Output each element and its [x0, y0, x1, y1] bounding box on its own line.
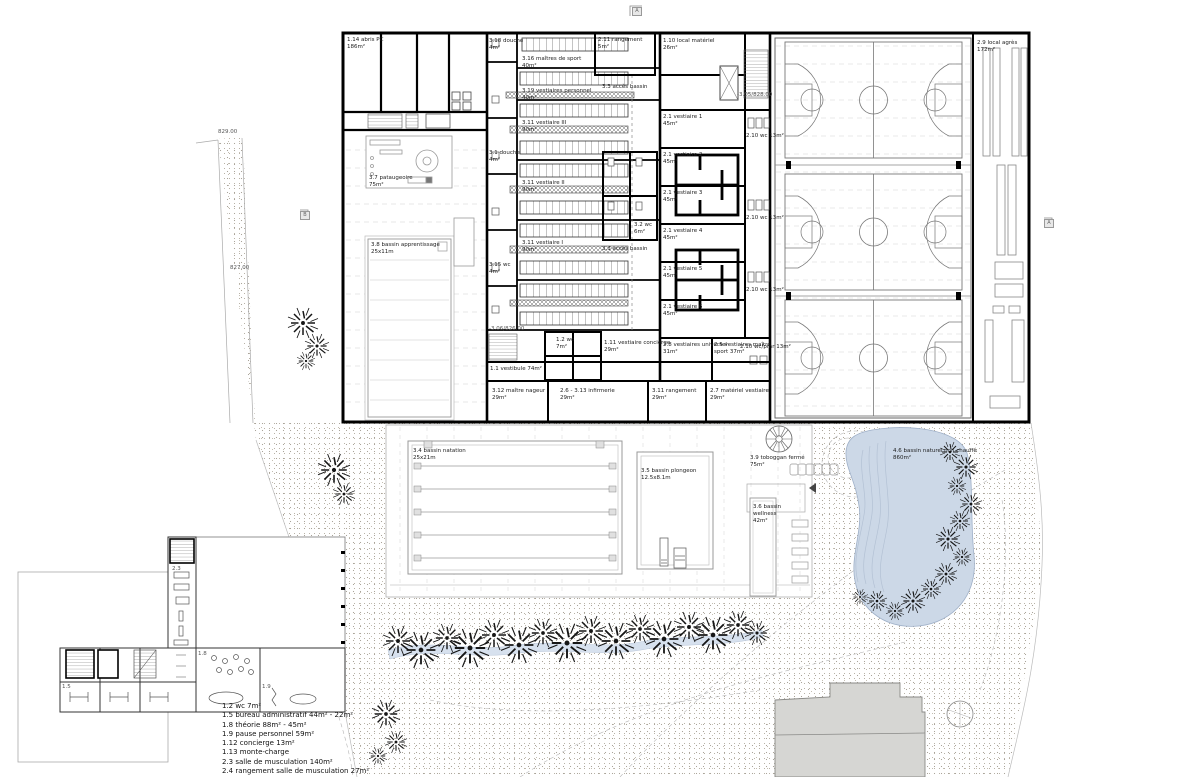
- room-label: 2.1 vestiaire 2 45m²: [663, 152, 702, 166]
- room-label: 3.16 maîtres de sport 40m²: [522, 56, 581, 70]
- room-legend: 1.2 wc 7m² 1.5 bureau administratif 44m²…: [222, 702, 369, 776]
- room-label: 1.11 vestiaire concierge 29m²: [604, 340, 670, 354]
- room-label: 2.10 wc 13m²: [746, 215, 784, 222]
- room-label: 3.3 accès bassin: [602, 84, 648, 91]
- level-label: -3.06/826.00: [489, 326, 524, 333]
- site-plan: 1.14 abris PC 186m² 2.9 local agrès 172m…: [0, 0, 1200, 777]
- room-label: 2.1 vestiaire 6 45m²: [663, 304, 702, 318]
- room-label: 1.1 vestibule 74m²: [490, 366, 542, 373]
- legend-line: 1.8 théorie 88m² - 45m²: [222, 721, 369, 730]
- pool-label: 3.6 bassin wellness 42m²: [753, 504, 781, 525]
- level-label: -3.05/828.00: [737, 92, 772, 99]
- room-number: 1.9: [262, 684, 271, 691]
- legend-line: 1.9 pause personnel 59m²: [222, 730, 369, 739]
- legend-line: 2.4 rangement salle de musculation 27m²: [222, 767, 369, 776]
- room-label: 2.1 vestiaire 3 45m²: [663, 190, 702, 204]
- legend-line: 1.5 bureau administratif 44m² - 22m²: [222, 711, 369, 720]
- room-label: 2.10 wc 13m²: [746, 133, 784, 140]
- room-number: 1.8: [198, 651, 207, 658]
- room-label: 1.10 local matériel 26m²: [663, 38, 715, 52]
- room-label: 3.11 vestiaire III 90m²: [522, 120, 566, 134]
- room-number: 2.3: [172, 566, 181, 573]
- room-label: 3.11 vestiaire II 90m²: [522, 180, 565, 194]
- legend-line: 1.13 monte-charge: [222, 748, 369, 757]
- room-label: 1.2 wc 7m²: [556, 337, 574, 351]
- room-label: 3.8 bassin apprentissage 25x11m: [371, 242, 440, 256]
- pool-label: 3.4 bassin natation 25x21m: [413, 448, 466, 462]
- room-label: 2.1 vestiaire 5 45m²: [663, 266, 702, 280]
- room-label: 2.1 vestiaire 4 45m²: [663, 228, 702, 242]
- existing-building: [775, 683, 973, 777]
- room-label: 3.3 accès bassin: [602, 246, 648, 253]
- legend-line: 1.2 wc 7m²: [222, 702, 369, 711]
- pond-label: 4.6 bassin naturel non chauffé 860m²: [893, 448, 977, 462]
- room-label: 2.5 vestiaires maître sport 37m²: [714, 342, 771, 356]
- room-label: 3.1 douche 4m²: [489, 150, 520, 164]
- stair-south: [489, 334, 517, 360]
- room-label: 3.19 vestiaires personnel 40m²: [522, 88, 591, 102]
- section-marker-right: A: [1044, 219, 1054, 228]
- section-marker-top: A: [632, 7, 642, 16]
- room-label: 3.11 vestiaire I 90m²: [522, 240, 563, 254]
- legend-line: 1.12 concierge 13m²: [222, 739, 369, 748]
- room-label: 2.1 vestiaire 1 45m²: [663, 114, 702, 128]
- room-label: 2.11 rangement 5m²: [598, 37, 642, 51]
- room-label: 2.10 wc 13m²: [746, 287, 784, 294]
- room-label: 3.11 rangement 29m²: [652, 388, 696, 402]
- room-label: 3.7 pataugeoire 75m²: [369, 175, 413, 189]
- room-label: 1.14 abris PC 186m²: [347, 37, 383, 51]
- legend-line: 2.3 salle de musculation 140m²: [222, 758, 369, 767]
- room-label: 3.12 maître nageur 29m²: [492, 388, 545, 402]
- room-label: 3.18 douche 4m²: [489, 38, 523, 52]
- room-label: 2.6 - 3.13 infirmerie 29m²: [560, 388, 615, 402]
- elevation-label: 827.00: [230, 265, 249, 272]
- pool-label: 3.9 toboggan fermé 75m²: [750, 455, 805, 469]
- room-label: 3.15 wc 4m²: [489, 262, 511, 276]
- room-label: 2.9 local agrès 172m²: [977, 40, 1017, 54]
- stair-admin: [170, 539, 194, 563]
- room-number: 1.5: [62, 684, 71, 691]
- room-label: 3.2 wc 6m²: [634, 222, 652, 236]
- room-label: 2.7 matériel vestiaire 29m²: [710, 388, 769, 402]
- section-marker-left: B: [300, 211, 310, 220]
- pool-label: 3.5 bassin plongeon 12.5x8.1m: [641, 468, 696, 482]
- elevation-label: 829.00: [218, 129, 237, 136]
